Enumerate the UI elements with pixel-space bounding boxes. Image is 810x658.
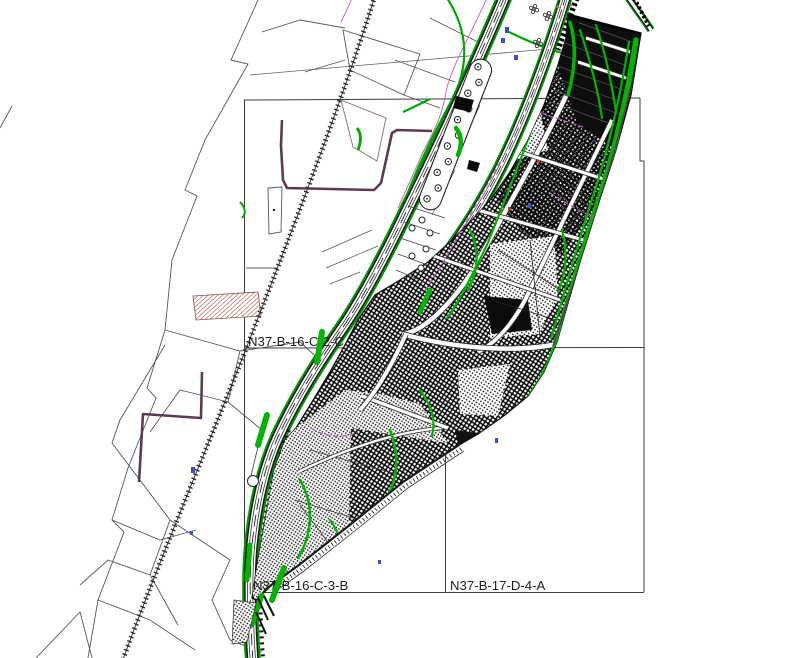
svg-text:N37-B-16-C-2-C: N37-B-16-C-2-C [248, 334, 344, 349]
svg-text:N37-B-16-C-3-B: N37-B-16-C-3-B [253, 578, 348, 593]
svg-text:N37-B-17-D-4-A: N37-B-17-D-4-A [450, 578, 545, 593]
